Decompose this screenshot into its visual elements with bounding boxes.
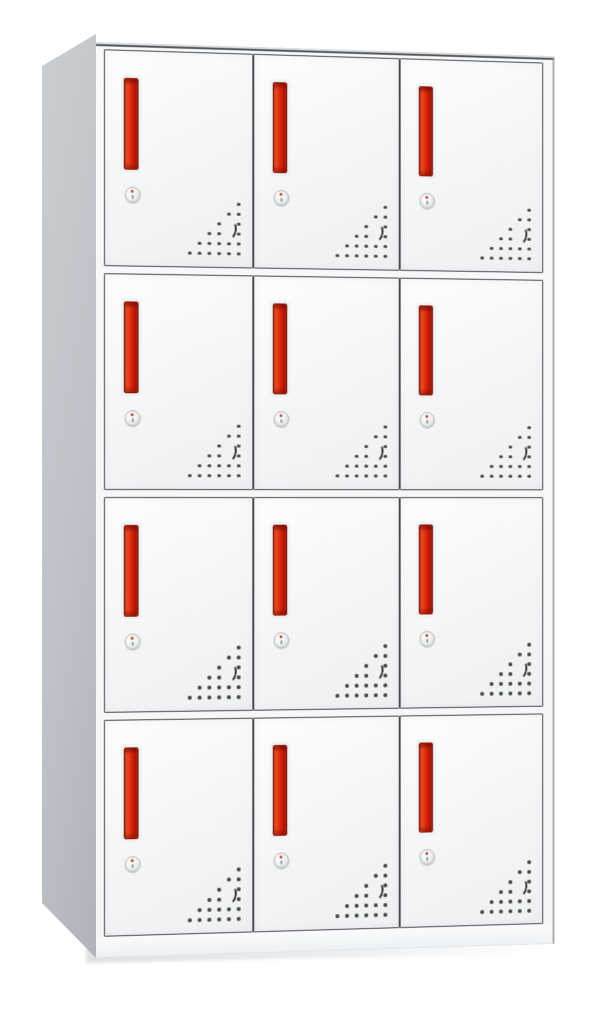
- vent-hole: [207, 464, 210, 467]
- vent-hole: [217, 252, 220, 256]
- vent-hole: [499, 465, 502, 468]
- vent-hole: [355, 904, 358, 908]
- vent-hole: [383, 435, 386, 438]
- vent-hole: [217, 908, 220, 912]
- vent-hole: [227, 434, 230, 437]
- vent-hole: [227, 686, 230, 690]
- vent-hole: [355, 254, 358, 257]
- locker-door-r2c2: [253, 275, 399, 490]
- vent-hole: [237, 646, 240, 650]
- vent-hole: [364, 244, 367, 247]
- vent-hole: [490, 692, 493, 695]
- vent-hole: [527, 247, 530, 250]
- vent-hole: [198, 464, 201, 467]
- vent-hole: [364, 913, 367, 917]
- vent-hole: [364, 235, 367, 238]
- locker-door-r4c3: [400, 714, 544, 928]
- vent-hole: [509, 455, 512, 458]
- vent-hole: [374, 903, 377, 907]
- lock-red-dot: [280, 635, 283, 638]
- vent-hole: [527, 208, 530, 211]
- vent-hole: [207, 898, 210, 902]
- door-lock: [420, 849, 435, 865]
- vent-hole: [374, 464, 377, 467]
- vent-hole: [527, 909, 530, 912]
- door-lock: [125, 633, 141, 649]
- vent-crescent-mark: [223, 219, 239, 240]
- vent-crescent-mark: [370, 222, 385, 243]
- vent-hole: [374, 654, 377, 657]
- vent-hole: [509, 900, 512, 903]
- vent-hole: [217, 474, 220, 477]
- vent-hole: [499, 890, 502, 893]
- vent-hole: [345, 474, 348, 477]
- vent-hole: [518, 909, 521, 912]
- vent-hole: [383, 893, 386, 897]
- vent-hole: [364, 254, 367, 257]
- door-handle: [124, 524, 139, 616]
- vent-hole: [518, 218, 521, 221]
- vent-hole: [237, 695, 240, 699]
- vent-hole: [198, 474, 201, 477]
- vent-hole: [207, 454, 210, 457]
- vent-hole: [217, 898, 220, 902]
- vent-hole: [509, 909, 512, 912]
- door-vent-perforations: [188, 202, 241, 257]
- vent-hole: [364, 684, 367, 687]
- vent-hole: [345, 694, 348, 697]
- vent-hole: [217, 666, 220, 670]
- lock-red-dot: [131, 190, 134, 193]
- door-handle: [419, 743, 433, 833]
- vent-hole: [355, 474, 358, 477]
- vent-hole: [237, 454, 240, 457]
- vent-hole: [217, 232, 220, 236]
- door-vent-perforations: [188, 424, 241, 478]
- door-handle: [273, 82, 288, 173]
- vent-hole: [509, 663, 512, 666]
- vent-hole: [374, 474, 377, 477]
- vent-hole: [490, 247, 493, 250]
- product-photo: [0, 0, 605, 1009]
- vent-hole: [383, 684, 386, 687]
- vent-hole: [207, 676, 210, 680]
- vent-hole: [355, 894, 358, 898]
- vent-hole: [207, 908, 210, 912]
- vent-hole: [336, 914, 339, 918]
- vent-hole: [345, 914, 348, 918]
- vent-hole: [217, 917, 220, 921]
- lock-red-dot: [131, 413, 134, 416]
- door-handle: [273, 745, 288, 836]
- vent-hole: [237, 242, 240, 246]
- vent-hole: [527, 257, 530, 260]
- vent-hole: [509, 890, 512, 893]
- vent-hole: [207, 232, 210, 236]
- vent-hole: [227, 252, 230, 256]
- vent-hole: [527, 653, 530, 656]
- vent-crescent-mark: [223, 663, 239, 684]
- vent-hole: [237, 203, 240, 207]
- vent-hole: [518, 257, 521, 260]
- vent-hole: [383, 445, 386, 448]
- vent-hole: [237, 676, 240, 680]
- vent-hole: [499, 692, 502, 695]
- vent-hole: [480, 692, 483, 695]
- vent-hole: [527, 474, 530, 477]
- vent-hole: [237, 685, 240, 689]
- door-vent-perforations: [480, 860, 531, 914]
- vent-hole: [383, 474, 386, 477]
- vent-hole: [527, 426, 530, 429]
- vent-hole: [499, 672, 502, 675]
- vent-hole: [345, 464, 348, 467]
- vent-hole: [509, 672, 512, 675]
- door-handle: [419, 524, 433, 614]
- vent-crescent-mark: [370, 442, 385, 463]
- vent-hole: [227, 464, 230, 467]
- vent-hole: [509, 228, 512, 231]
- vent-hole: [198, 242, 201, 246]
- door-lock: [274, 632, 290, 648]
- vent-hole: [374, 435, 377, 438]
- door-handle: [124, 301, 139, 393]
- lock-red-dot: [425, 852, 428, 855]
- vent-hole: [345, 244, 348, 247]
- vent-hole: [527, 228, 530, 231]
- vent-hole: [217, 696, 220, 700]
- vent-hole: [355, 914, 358, 918]
- vent-crescent-mark: [514, 877, 529, 897]
- vent-hole: [207, 242, 210, 246]
- door-handle: [419, 305, 433, 395]
- lock-red-dot: [425, 415, 428, 418]
- vent-hole: [237, 434, 240, 437]
- vent-hole: [198, 908, 201, 912]
- vent-hole: [207, 474, 210, 477]
- vent-hole: [207, 686, 210, 690]
- vent-hole: [499, 900, 502, 903]
- door-lock: [420, 412, 435, 428]
- vent-hole: [188, 474, 191, 477]
- vent-hole: [509, 247, 512, 250]
- lock-red-dot: [425, 196, 428, 199]
- vent-hole: [188, 918, 191, 922]
- door-vent-perforations: [480, 425, 531, 478]
- door-vent-perforations: [336, 864, 388, 918]
- door-vent-perforations: [480, 643, 531, 696]
- vent-hole: [383, 206, 386, 209]
- vent-hole: [336, 694, 339, 697]
- vent-hole: [499, 682, 502, 685]
- vent-hole: [198, 251, 201, 255]
- vent-hole: [509, 682, 512, 685]
- vent-hole: [364, 904, 367, 908]
- vent-crescent-mark: [514, 660, 529, 680]
- vent-hole: [383, 454, 386, 457]
- vent-hole: [217, 222, 220, 226]
- vent-hole: [518, 465, 521, 468]
- locker-door-r4c2: [253, 716, 399, 933]
- vent-hole: [527, 870, 530, 873]
- vent-hole: [383, 664, 386, 667]
- vent-hole: [490, 256, 493, 259]
- vent-hole: [499, 237, 502, 240]
- vent-hole: [237, 867, 240, 871]
- door-lock: [125, 856, 141, 872]
- vent-hole: [527, 889, 530, 892]
- vent-hole: [198, 696, 201, 700]
- vent-hole: [237, 222, 240, 226]
- vent-hole: [480, 910, 483, 914]
- vent-hole: [198, 918, 201, 922]
- vent-hole: [527, 860, 530, 863]
- vent-hole: [509, 692, 512, 695]
- vent-hole: [509, 445, 512, 448]
- vent-hole: [188, 251, 191, 255]
- vent-hole: [364, 454, 367, 457]
- vent-hole: [527, 682, 530, 685]
- vent-hole: [527, 218, 530, 221]
- door-vent-perforations: [336, 205, 388, 259]
- vent-hole: [237, 464, 240, 467]
- vent-hole: [383, 425, 386, 428]
- vent-hole: [374, 694, 377, 697]
- vent-hole: [480, 256, 483, 259]
- vent-hole: [336, 254, 339, 257]
- locker-door-r1c2: [253, 54, 399, 271]
- vent-hole: [374, 215, 377, 218]
- vent-hole: [217, 454, 220, 457]
- vent-hole: [364, 225, 367, 228]
- vent-hole: [217, 444, 220, 447]
- door-lock: [125, 187, 141, 203]
- vent-hole: [499, 257, 502, 260]
- vent-hole: [527, 880, 530, 883]
- vent-hole: [374, 254, 377, 257]
- vent-crescent-mark: [370, 881, 385, 901]
- vent-hole: [527, 238, 530, 241]
- door-handle: [419, 86, 433, 176]
- vent-hole: [509, 257, 512, 260]
- vent-hole: [383, 245, 386, 248]
- vent-hole: [237, 212, 240, 216]
- vent-hole: [383, 235, 386, 238]
- vent-hole: [518, 474, 521, 477]
- door-lock: [125, 410, 141, 426]
- door-lock: [274, 190, 290, 206]
- vent-hole: [364, 694, 367, 697]
- vent-hole: [518, 682, 521, 685]
- vent-hole: [383, 874, 386, 878]
- vent-hole: [364, 894, 367, 898]
- door-lock: [420, 193, 435, 209]
- lock-red-dot: [425, 633, 428, 636]
- door-vent-perforations: [336, 425, 388, 478]
- vent-hole: [237, 424, 240, 427]
- vent-crescent-mark: [223, 441, 239, 462]
- lock-red-dot: [131, 859, 134, 862]
- door-vent-perforations: [188, 867, 241, 922]
- vent-hole: [227, 474, 230, 477]
- vent-hole: [499, 455, 502, 458]
- locker-door-r3c2: [253, 497, 399, 711]
- vent-hole: [237, 897, 240, 901]
- vent-hole: [480, 474, 483, 477]
- vent-hole: [364, 884, 367, 888]
- vent-hole: [217, 464, 220, 467]
- vent-hole: [509, 880, 512, 883]
- vent-hole: [374, 245, 377, 248]
- vent-hole: [527, 662, 530, 665]
- vent-hole: [490, 910, 493, 914]
- lock-red-dot: [280, 414, 283, 417]
- vent-hole: [509, 465, 512, 468]
- vent-hole: [374, 874, 377, 878]
- locker-side-panel: [42, 33, 96, 958]
- vent-crescent-mark: [223, 885, 239, 906]
- vent-hole: [217, 888, 220, 892]
- door-handle: [124, 748, 139, 840]
- vent-hole: [383, 225, 386, 228]
- door-vent-perforations: [188, 646, 241, 700]
- vent-hole: [237, 666, 240, 670]
- vent-hole: [518, 692, 521, 695]
- vent-hole: [364, 664, 367, 667]
- vent-hole: [383, 654, 386, 657]
- door-handle: [273, 524, 288, 615]
- vent-hole: [227, 907, 230, 911]
- vent-hole: [227, 878, 230, 882]
- locker-front: [96, 44, 554, 958]
- vent-hole: [518, 435, 521, 438]
- vent-hole: [383, 674, 386, 677]
- vent-hole: [518, 247, 521, 250]
- vent-hole: [490, 682, 493, 685]
- door-handle: [273, 303, 288, 394]
- vent-crescent-mark: [514, 442, 529, 462]
- vent-hole: [527, 899, 530, 902]
- vent-hole: [364, 445, 367, 448]
- vent-hole: [364, 474, 367, 477]
- locker-door-r3c1: [104, 497, 253, 714]
- door-lock: [274, 853, 290, 869]
- vent-hole: [490, 900, 493, 903]
- vent-hole: [237, 252, 240, 256]
- vent-hole: [237, 907, 240, 911]
- vent-hole: [207, 918, 210, 922]
- vent-hole: [237, 232, 240, 236]
- vent-hole: [345, 904, 348, 908]
- vent-hole: [237, 444, 240, 447]
- vent-hole: [374, 684, 377, 687]
- vent-hole: [217, 242, 220, 246]
- lock-red-dot: [280, 856, 283, 859]
- vent-hole: [345, 254, 348, 257]
- vent-hole: [355, 674, 358, 677]
- vent-hole: [499, 474, 502, 477]
- lock-red-dot: [131, 636, 134, 639]
- vent-hole: [355, 684, 358, 687]
- vent-hole: [355, 244, 358, 247]
- vent-hole: [355, 464, 358, 467]
- vent-hole: [237, 917, 240, 921]
- vent-hole: [355, 234, 358, 237]
- locker-door-r1c1: [104, 49, 253, 268]
- vent-hole: [518, 899, 521, 902]
- vent-hole: [499, 247, 502, 250]
- vent-hole: [227, 212, 230, 216]
- vent-hole: [527, 455, 530, 458]
- vent-hole: [355, 454, 358, 457]
- vent-hole: [383, 464, 386, 467]
- vent-hole: [527, 445, 530, 448]
- vent-hole: [336, 474, 339, 477]
- vent-hole: [227, 695, 230, 699]
- vent-hole: [490, 474, 493, 477]
- vent-hole: [527, 692, 530, 695]
- vent-hole: [383, 903, 386, 907]
- vent-hole: [383, 693, 386, 696]
- vent-hole: [383, 883, 386, 887]
- vent-hole: [217, 676, 220, 680]
- vent-hole: [527, 643, 530, 646]
- vent-hole: [383, 864, 386, 868]
- vent-hole: [227, 917, 230, 921]
- vent-hole: [509, 474, 512, 477]
- vent-hole: [527, 435, 530, 438]
- vent-hole: [527, 465, 530, 468]
- vent-hole: [198, 686, 201, 690]
- vent-hole: [499, 910, 502, 913]
- vent-hole: [237, 474, 240, 477]
- vent-hole: [237, 656, 240, 660]
- vent-hole: [518, 653, 521, 656]
- locker-door-r1c3: [400, 58, 544, 273]
- vent-hole: [383, 644, 386, 647]
- vent-hole: [345, 684, 348, 687]
- vent-crescent-mark: [370, 661, 385, 681]
- vent-hole: [490, 464, 493, 467]
- vent-hole: [518, 870, 521, 873]
- locker-door-r4c1: [104, 718, 253, 937]
- vent-hole: [527, 672, 530, 675]
- vent-hole: [383, 913, 386, 917]
- vent-hole: [217, 686, 220, 690]
- vent-hole: [207, 696, 210, 700]
- vent-hole: [364, 464, 367, 467]
- vent-hole: [227, 656, 230, 660]
- locker-door-r2c3: [400, 277, 544, 489]
- locker-door-grid: [104, 49, 543, 937]
- vent-hole: [207, 252, 210, 256]
- vent-hole: [509, 237, 512, 240]
- lock-red-dot: [280, 193, 283, 196]
- vent-hole: [383, 215, 386, 218]
- door-lock: [274, 411, 290, 427]
- door-vent-perforations: [336, 644, 388, 698]
- door-lock: [420, 630, 435, 646]
- door-vent-perforations: [480, 208, 531, 261]
- vent-hole: [364, 674, 367, 677]
- vent-hole: [374, 913, 377, 917]
- locker-door-r3c3: [400, 497, 544, 709]
- vent-hole: [237, 877, 240, 881]
- vent-hole: [355, 694, 358, 697]
- vent-hole: [188, 696, 191, 700]
- door-handle: [124, 78, 139, 170]
- vent-hole: [383, 255, 386, 258]
